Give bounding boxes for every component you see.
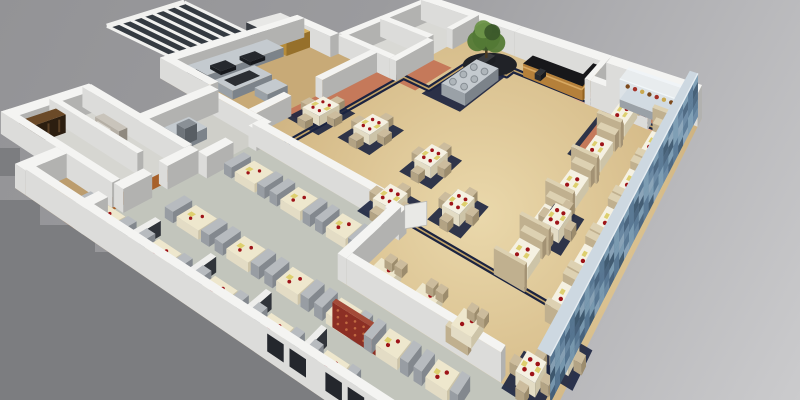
floorplan-3d-render	[0, 0, 800, 400]
door-leaf	[405, 201, 427, 228]
render-viewport	[0, 0, 800, 400]
